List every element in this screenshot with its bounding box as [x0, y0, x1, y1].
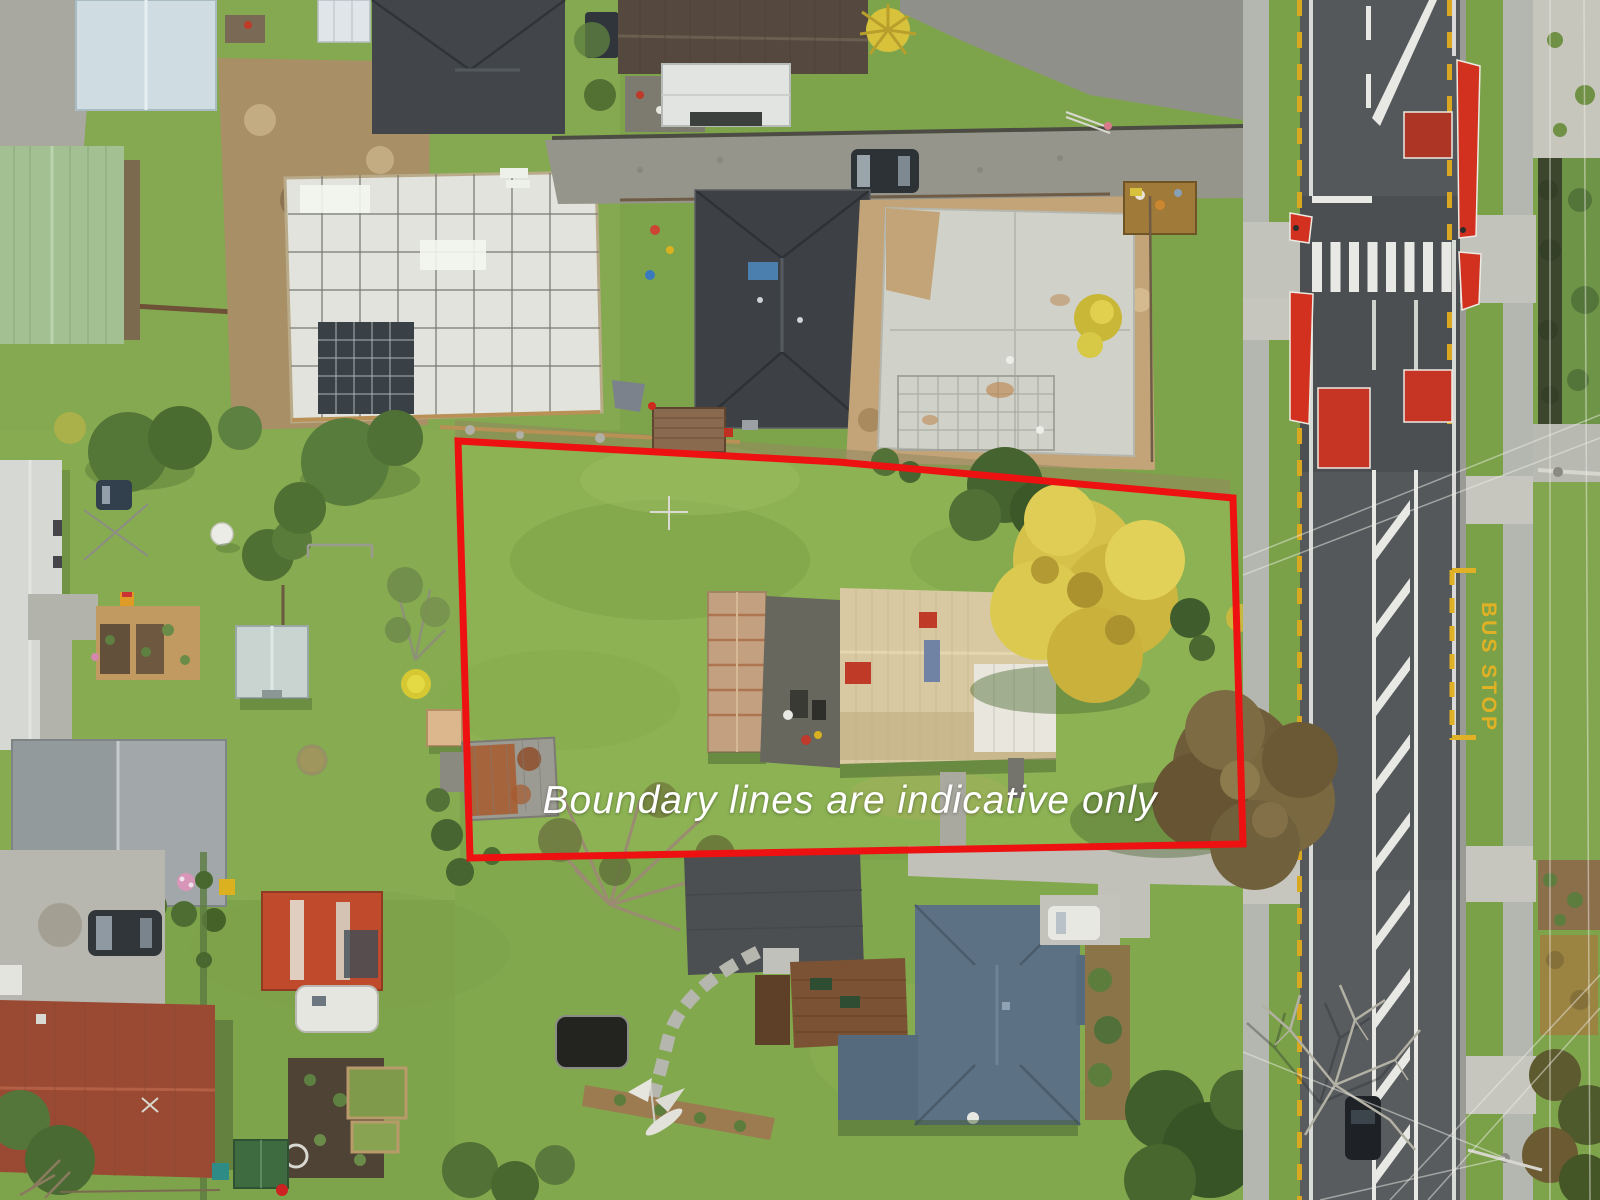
round-table — [211, 523, 233, 545]
caravan — [296, 986, 378, 1032]
bus-stop-text: BUS STOP — [1477, 602, 1500, 733]
aerial-scene: BUS STOP — [0, 0, 1600, 1200]
construction-slab-west — [285, 168, 602, 422]
disclaimer-text: Boundary lines are indicative only — [542, 779, 1159, 822]
parked-suv-lane — [851, 149, 919, 193]
parked-suv-bottom — [88, 910, 162, 956]
charcoal-house — [695, 190, 870, 428]
concrete-pad — [28, 594, 98, 640]
weathered-brown-shed — [653, 408, 725, 452]
footpath-east — [1503, 0, 1533, 1200]
glasshouse — [318, 0, 370, 42]
flat-roof-garage — [684, 852, 864, 975]
trampoline — [556, 1016, 628, 1068]
blue-tarp — [748, 262, 778, 280]
green-shed — [234, 1140, 288, 1188]
blue-white-shed — [236, 626, 312, 710]
teal-bin — [212, 1163, 229, 1180]
yellow-box — [219, 879, 235, 895]
slab-membrane-dark — [318, 322, 414, 414]
grey-tarp — [612, 380, 645, 412]
tan-shed — [427, 710, 464, 754]
skip-bin — [1124, 182, 1196, 234]
fire-pit-ring — [298, 746, 326, 774]
footpath-west — [1243, 0, 1269, 1200]
aerial-photo: BUS STOP — [0, 0, 1600, 1200]
brown-roof-house — [618, 0, 868, 74]
white-car-partial — [0, 965, 22, 995]
pink-flowers — [177, 873, 195, 891]
white-shed — [662, 64, 790, 126]
top-dark-house — [372, 0, 565, 134]
power-pole — [1553, 467, 1563, 477]
roof-blue-patch — [924, 640, 940, 682]
roof-red-patch — [845, 662, 871, 684]
orange-shed — [262, 892, 382, 990]
green-roof-house — [0, 146, 140, 344]
construction-slab-east — [846, 182, 1196, 470]
mulch-garden — [91, 606, 200, 680]
subject-garage — [708, 592, 766, 764]
white-car-driveway — [1040, 895, 1120, 945]
small-gray-shed — [440, 752, 464, 792]
garden-frame — [348, 1068, 406, 1118]
gravel-yard — [1533, 0, 1600, 158]
round-bush — [1170, 598, 1210, 638]
parked-car-left — [96, 480, 132, 510]
courtyard — [760, 596, 840, 768]
street: BUS STOP — [1243, 0, 1536, 1200]
wooden-deck — [790, 958, 908, 1048]
